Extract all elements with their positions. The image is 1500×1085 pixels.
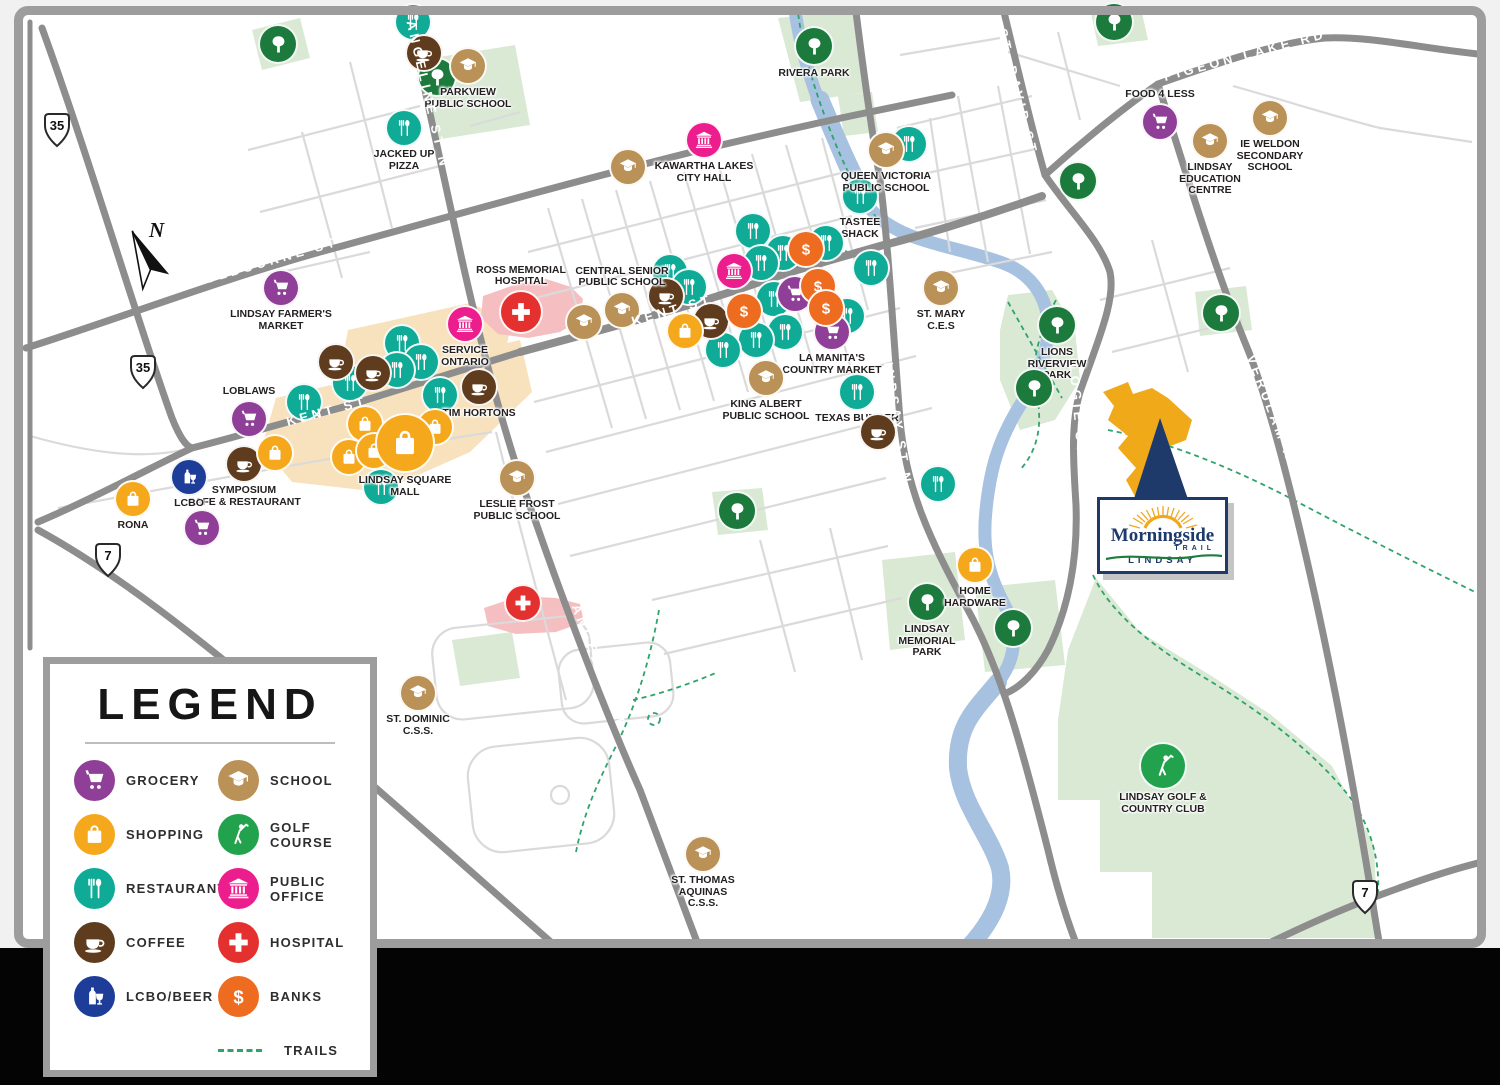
svg-text:35: 35 <box>136 360 150 375</box>
logo-trail: TRAIL <box>1174 545 1215 552</box>
grocery-icon <box>230 400 268 438</box>
grocery-icon <box>74 760 115 801</box>
compass-north-label: N <box>149 218 164 243</box>
marker-label: LOBLAWS <box>223 386 276 398</box>
school-icon <box>609 148 647 186</box>
marker-label: ST. DOMINIC C.S.S. <box>386 714 450 737</box>
lcbo-icon <box>74 976 115 1017</box>
marker-label: FOOD 4 LESS <box>1125 89 1194 101</box>
marker-label: SERVICE ONTARIO <box>441 345 489 368</box>
legend-item-label: GOLF COURSE <box>270 820 362 850</box>
legend-title: LEGEND <box>50 680 370 730</box>
school-icon <box>867 131 905 169</box>
coffee-icon <box>74 922 115 963</box>
marker-label: LESLIE FROST PUBLIC SCHOOL <box>474 499 561 522</box>
marker-label: QUEEN VICTORIA PUBLIC SCHOOL <box>841 171 931 194</box>
highway-shield: 7 <box>1348 880 1382 921</box>
legend-column-left: GROCERYSHOPPINGRESTAURANTCOFFEELCBO/BEER <box>74 760 218 1084</box>
shopping-icon <box>375 413 435 473</box>
marker-label: LINDSAY FARMER'S MARKET <box>230 309 332 332</box>
shopping-icon <box>114 480 152 518</box>
legend-item-hospital: HOSPITAL <box>218 922 362 963</box>
school-icon <box>218 760 259 801</box>
legend-item-grocery: GROCERY <box>74 760 218 801</box>
svg-text:7: 7 <box>1361 885 1368 900</box>
legend-item-label: SCHOOL <box>270 773 333 788</box>
marker-label: KAWARTHA LAKES CITY HALL <box>655 161 754 184</box>
marker-label: SYMPOSIUM CAFE & RESTAURANT <box>187 485 301 508</box>
legend-item-label: GROCERY <box>126 773 200 788</box>
marker-label: RIVERA PARK <box>778 68 849 80</box>
public-icon <box>218 868 259 909</box>
logo-name: Morningside <box>1111 526 1214 545</box>
school-icon <box>449 47 487 85</box>
svg-text:35: 35 <box>50 118 64 133</box>
school-icon <box>1251 99 1289 137</box>
park-icon <box>1014 368 1054 408</box>
svg-text:7: 7 <box>104 548 111 563</box>
marker-label: ROSS MEMORIAL HOSPITAL <box>476 265 566 288</box>
public-icon <box>715 252 753 290</box>
legend-item-label: LCBO/BEER <box>126 989 213 1004</box>
school-icon <box>922 269 960 307</box>
legend-panel: LEGEND GROCERYSHOPPINGRESTAURANTCOFFEELC… <box>43 657 377 1077</box>
legend-item-shopping: SHOPPING <box>74 814 218 855</box>
park-icon <box>1058 161 1098 201</box>
logo-swoosh <box>1104 552 1224 562</box>
park-icon <box>1201 293 1241 333</box>
legend-column-right: SCHOOLGOLF COURSEPUBLIC OFFICEHOSPITALBA… <box>218 760 362 1084</box>
map-screenshot: $ <box>0 0 1500 1085</box>
school-icon <box>399 674 437 712</box>
grocery-icon <box>183 509 221 547</box>
shopping-icon <box>956 546 994 584</box>
marker-label: JACKED UP PIZZA <box>374 149 435 172</box>
legend-divider <box>85 742 335 744</box>
legend-item-label: TRAILS <box>284 1043 338 1058</box>
coffee-icon <box>354 354 392 392</box>
marker-label: TASTEE SHACK <box>840 217 881 240</box>
marker-label: LINDSAY MEMORIAL PARK <box>898 624 955 659</box>
shopping-icon <box>74 814 115 855</box>
hospital-icon <box>218 922 259 963</box>
grocery-icon <box>262 269 300 307</box>
trails-dash-icon <box>218 1049 262 1052</box>
park-icon <box>717 491 757 531</box>
legend-item-label: SHOPPING <box>126 827 204 842</box>
legend-item-trails: TRAILS <box>218 1030 362 1071</box>
marker-label: LINDSAY GOLF & COUNTRY CLUB <box>1119 792 1207 815</box>
coffee-icon <box>317 343 355 381</box>
legend-item-label: PUBLIC OFFICE <box>270 874 362 904</box>
restaurant-icon <box>919 465 957 503</box>
legend-item-lcbo: LCBO/BEER <box>74 976 218 1017</box>
park-icon <box>1037 305 1077 345</box>
school-icon <box>565 303 603 341</box>
legend-item-label: HOSPITAL <box>270 935 344 950</box>
restaurant-icon <box>852 249 890 287</box>
legend-item-label: RESTAURANT <box>126 881 227 896</box>
park-icon <box>794 26 834 66</box>
marker-label: HOME HARDWARE <box>944 586 1006 609</box>
bank-icon <box>218 976 259 1017</box>
marker-label: LINDSAY SQUARE MALL <box>359 475 452 498</box>
highway-shield: 7 <box>91 543 125 584</box>
park-icon <box>1094 2 1134 42</box>
school-icon <box>684 835 722 873</box>
marker-label: ST. THOMAS AQUINAS C.S.S. <box>671 875 735 910</box>
morningside-logo: Morningside TRAIL LINDSAY <box>1097 497 1228 574</box>
restaurant-icon <box>74 868 115 909</box>
marker-label: IE WELDON SECONDARY SCHOOL <box>1237 139 1304 174</box>
grocery-icon <box>1141 103 1179 141</box>
lcbo-icon <box>170 458 208 496</box>
marker-label: ST. MARY C.E.S <box>917 309 966 332</box>
restaurant-icon <box>385 109 423 147</box>
bank-icon <box>725 292 763 330</box>
hospital-icon <box>504 584 542 622</box>
legend-item-bank: BANKS <box>218 976 362 1017</box>
highway-shield: 35 <box>126 355 160 396</box>
marker-label: LA MANITA'S COUNTRY MARKET <box>782 353 881 376</box>
golf-icon <box>218 814 259 855</box>
legend-item-coffee: COFFEE <box>74 922 218 963</box>
legend-item-restaurant: RESTAURANT <box>74 868 218 909</box>
legend-items: GROCERYSHOPPINGRESTAURANTCOFFEELCBO/BEER… <box>74 760 370 1084</box>
park-icon <box>907 582 947 622</box>
school-icon <box>498 459 536 497</box>
marker-label: TIM HORTONS <box>442 408 515 420</box>
highway-shield: 35 <box>40 113 74 154</box>
coffee-icon <box>460 368 498 406</box>
legend-item-public: PUBLIC OFFICE <box>218 868 362 909</box>
legend-item-label: BANKS <box>270 989 322 1004</box>
marker-label: LCBO <box>174 498 204 510</box>
legend-item-golf: GOLF COURSE <box>218 814 362 855</box>
school-icon <box>1191 122 1229 160</box>
hospital-icon <box>499 290 543 334</box>
marker-label: CENTRAL SENIOR PUBLIC SCHOOL <box>575 266 668 289</box>
public-icon <box>685 121 723 159</box>
park-icon <box>993 608 1033 648</box>
school-icon <box>747 359 785 397</box>
marker-label: KING ALBERT PUBLIC SCHOOL <box>723 399 810 422</box>
legend-item-label: COFFEE <box>126 935 186 950</box>
legend-item-school: SCHOOL <box>218 760 362 801</box>
shopping-icon <box>256 434 294 472</box>
bank-icon <box>787 230 825 268</box>
restaurant-icon <box>838 373 876 411</box>
bank-icon <box>807 289 845 327</box>
park-icon <box>258 24 298 64</box>
marker-label: LINDSAY EDUCATION CENTRE <box>1179 162 1241 197</box>
golf-icon <box>1139 742 1187 790</box>
marker-label: RONA <box>118 520 149 532</box>
public-icon <box>446 305 484 343</box>
